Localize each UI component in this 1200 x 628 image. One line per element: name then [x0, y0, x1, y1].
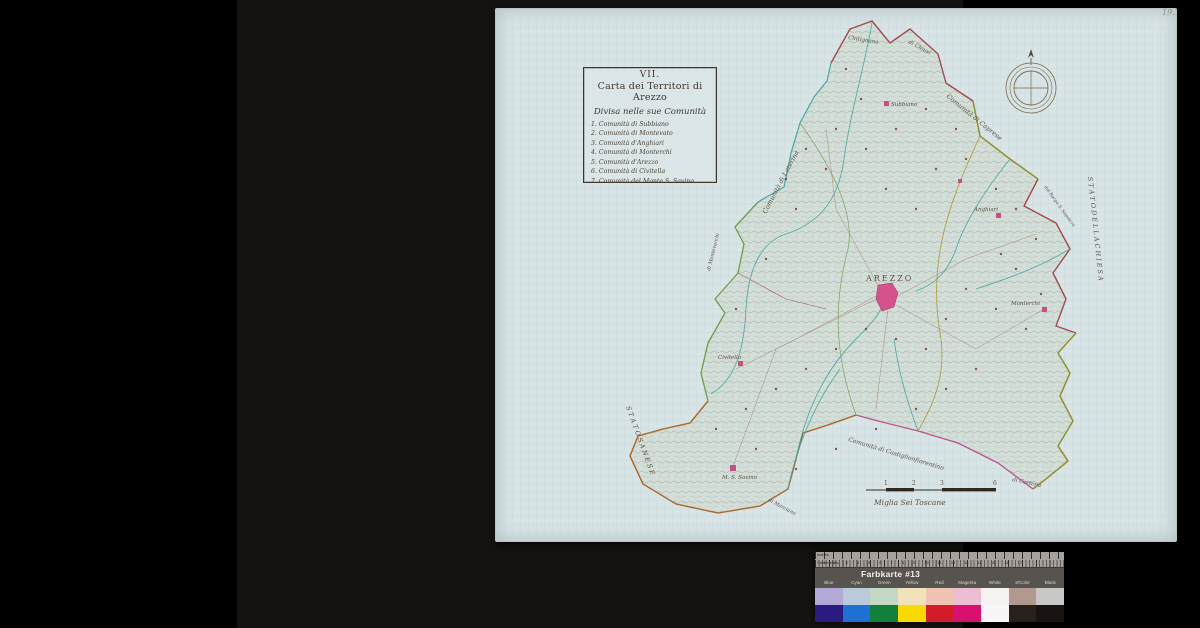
color-patch-solid [926, 605, 954, 622]
montevarchi-edge-label: di Montevarchi [706, 232, 721, 271]
tint-patch-row [815, 588, 1064, 605]
title-cartouche: VII. Carta dei Territori di Arezzo Divis… [583, 67, 717, 183]
page-number-annotation: 19. [1162, 8, 1175, 17]
scale-tick-6: 6 [993, 480, 997, 487]
stato-della-chiesa-label: S T A T O D E L L A C H I E S A [1086, 176, 1105, 281]
legend-item: 5. Comunità d'Arezzo [591, 158, 716, 167]
patch-label: White [981, 580, 1009, 588]
inch-ticks [815, 552, 1064, 559]
color-patch-tint [1009, 588, 1037, 605]
color-patch-solid [1009, 605, 1037, 622]
color-patch-solid [843, 605, 871, 622]
color-patch-tint [953, 588, 981, 605]
scale-tick-3: 3 [940, 480, 944, 487]
north-fleur-icon [1028, 49, 1034, 58]
color-patch-tint [981, 588, 1009, 605]
legend-item: 6. Comunità di Civitella [591, 167, 716, 176]
civitella-label: Civitella [718, 355, 741, 361]
subbiano-patch [884, 101, 889, 106]
compass-rose [1006, 49, 1056, 113]
marciano-edge-label: di Marciano [767, 497, 797, 517]
legend-item: 1. Comunità di Subbiano [591, 120, 716, 129]
color-patch-tint [843, 588, 871, 605]
inches-label: Inches [817, 552, 829, 557]
legend-item: 4. Comunità di Monterchi [591, 148, 716, 157]
map-subtitle: Divisa nelle sue Comunità [584, 107, 716, 117]
scan-viewport: AREZZO Subbiano Anghiari Monterchi Civit… [0, 0, 1200, 628]
arezzo-label: AREZZO [865, 274, 913, 283]
color-patch-tint [926, 588, 954, 605]
patch-label: Magenta [953, 580, 981, 588]
ruler-numbers: 1 2 3 4 5 6 7 8 9 10 11 12 13 14 15 16 1… [823, 561, 1063, 565]
ruler-strip: Inches Centimeters 1 2 3 4 5 6 7 8 9 10 … [815, 552, 1064, 568]
color-patch-solid [981, 605, 1009, 622]
map-sheet: AREZZO Subbiano Anghiari Monterchi Civit… [495, 8, 1177, 542]
color-patch-solid [953, 605, 981, 622]
patch-label: 3/Color [1009, 580, 1037, 588]
color-patch-tint [815, 588, 843, 605]
scale-tick-2: 2 [912, 480, 916, 487]
color-patch-solid [815, 605, 843, 622]
scale-tick-1: 1 [884, 480, 888, 487]
legend-item: 3. Comunità d'Anghiari [591, 139, 716, 148]
castiglionfiorentino-edge-label: Comunità di Castiglionfiorentino [847, 436, 945, 472]
anghiari-patch [996, 213, 1001, 218]
color-patch-solid [1036, 605, 1064, 622]
scale-caption: Miglia Sei Toscane [873, 498, 946, 507]
monte-s-savino-label: M. S. Savino [721, 475, 758, 481]
color-patch-tint [898, 588, 926, 605]
patch-label: Red [926, 580, 954, 588]
community-legend: 1. Comunità di Subbiano 2. Comunità di M… [584, 120, 716, 186]
legend-item: 2. Comunità di Montevato [591, 129, 716, 138]
color-calibration-card: Inches Centimeters 1 2 3 4 5 6 7 8 9 10 … [815, 552, 1064, 622]
legend-item: 7. Comunità del Monte S. Savino [591, 177, 716, 186]
patch-label: Yellow [898, 580, 926, 588]
map-title: Carta dei Territori di Arezzo [584, 81, 716, 103]
card-title: Farbkarte #13 [815, 568, 1064, 580]
photo-background: AREZZO Subbiano Anghiari Monterchi Civit… [237, 0, 963, 628]
patch-label: Blue [815, 580, 843, 588]
civitella-patch [738, 361, 743, 366]
patch-labels: Blue Cyan Green Yellow Red Magenta White… [815, 580, 1064, 588]
patch-label: Green [870, 580, 898, 588]
monte-s-savino-patch [730, 465, 736, 471]
monterchi-patch [1042, 307, 1047, 312]
minor-town-patch [958, 179, 962, 183]
solid-patch-row [815, 605, 1064, 622]
anghiari-label: Anghiari [973, 207, 998, 213]
subbiano-label: Subbiano [891, 102, 918, 108]
patch-label: Cyan [843, 580, 871, 588]
color-patch-tint [870, 588, 898, 605]
color-patch-solid [898, 605, 926, 622]
monterchi-label: Monterchi [1010, 301, 1040, 307]
cartouche-number: VII. [584, 70, 716, 80]
patch-label: Black [1036, 580, 1064, 588]
scale-bar: 1 2 3 6 Miglia Sei Toscane [866, 480, 997, 507]
color-patch-solid [870, 605, 898, 622]
color-patch-tint [1036, 588, 1064, 605]
